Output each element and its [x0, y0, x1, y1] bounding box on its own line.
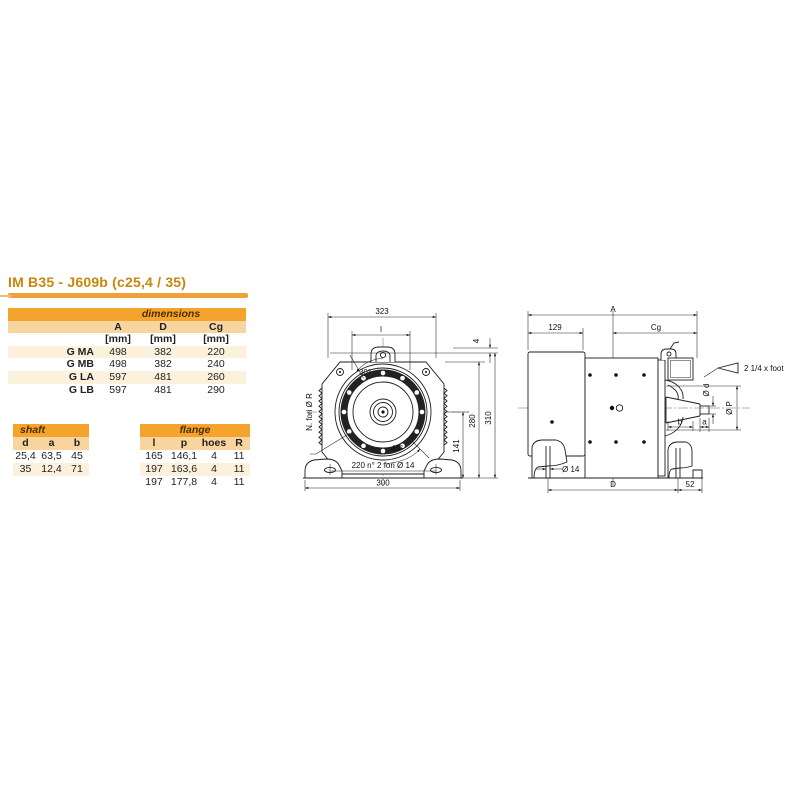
angle-45-label: 45° [391, 444, 403, 453]
side-view-drawing: A 129 Cg Ø 14 [510, 298, 800, 508]
table-row: 165 146,1 4 11 [140, 450, 250, 463]
table-row: 197 163,6 4 11 [140, 463, 250, 476]
cg-label: Cg [651, 323, 661, 332]
dimensions-table-title: dimensions [8, 308, 246, 321]
total-height-label: 310 [484, 411, 493, 425]
a-label: a [702, 418, 707, 427]
b-label: b [678, 418, 683, 427]
center-height-label: 141 [452, 439, 461, 453]
left-length-dim: 129 [528, 323, 583, 350]
total-length-label: A [610, 305, 616, 314]
left-length-label: 129 [548, 323, 562, 332]
title-underline [8, 293, 248, 298]
table-row: G MA 498 382 220 [8, 346, 246, 359]
foot-note-arrow-icon [718, 363, 738, 373]
page-title: IM B35 - J609b (c25,4 / 35) [8, 274, 186, 290]
col-Cg: Cg [186, 321, 246, 334]
dimensions-table: dimensions A D Cg [mm] [mm] [mm] G MA 49… [8, 308, 246, 396]
terminal-box [668, 358, 693, 380]
col-D: D [140, 321, 186, 334]
end-length-label: 52 [686, 480, 695, 489]
shaft-table: shaft d a b 25,4 63,5 45 35 12,4 71 [13, 424, 89, 476]
flange-p-label: Ø P [725, 401, 734, 415]
title-underline-tail [0, 295, 12, 297]
b-dim: b [668, 418, 693, 432]
front-width-label: 323 [375, 307, 389, 316]
holes-note-label: N. fori Ø R [305, 393, 314, 431]
left-ribs [319, 388, 322, 445]
foot-note-label: 2 1/4 x foot [744, 364, 784, 373]
cg-dim: Cg [613, 323, 697, 333]
d-length-label: D [610, 480, 616, 489]
right-ribs [444, 388, 447, 445]
base-width-label: 300 [376, 479, 390, 488]
shaft-table-title: shaft [13, 424, 89, 437]
center-mark [610, 406, 614, 410]
d-length-dim: D [548, 480, 678, 490]
front-l-label: l [380, 325, 382, 334]
table-row: G LB 597 481 290 [8, 384, 246, 397]
flange-table-title: flange [140, 424, 250, 437]
unit-D: [mm] [140, 333, 186, 346]
front-base-width-dim: 300 [305, 479, 460, 492]
top-gap-label: 4 [472, 338, 481, 343]
col-A: A [96, 321, 140, 334]
stator-body [585, 358, 658, 478]
foot-hole-label: Ø 14 [562, 465, 580, 474]
table-row: 35 12,4 71 [13, 463, 89, 476]
table-row: G MB 498 382 240 [8, 358, 246, 371]
datasheet-page: IM B35 - J609b (c25,4 / 35) dimensions A… [0, 0, 800, 800]
unit-A: [mm] [96, 333, 140, 346]
table-row: 197 177,8 4 11 [140, 476, 250, 489]
foot-note: 2 1/4 x foot [704, 363, 784, 377]
angle-30-label: 30° [359, 368, 371, 377]
front-height-dims: 141 280 310 [445, 353, 498, 478]
front-view-drawing: 30° 45° 323 l 4 [295, 300, 500, 500]
frame-height-label: 280 [468, 414, 477, 428]
table-row: G LA 597 481 260 [8, 371, 246, 384]
unit-Cg: [mm] [186, 333, 246, 346]
top-gap-dim: 4 [330, 338, 498, 363]
end-length-dim: 52 [678, 480, 702, 490]
flange-table: flange l p hoes R 165 146,1 4 11 197 163… [140, 424, 250, 489]
feet-holes-label: 220 n° 2 fori Ø 14 [352, 461, 415, 470]
table-row: 25,4 63,5 45 [13, 450, 89, 463]
shaft-d-label: Ø d [702, 384, 711, 397]
